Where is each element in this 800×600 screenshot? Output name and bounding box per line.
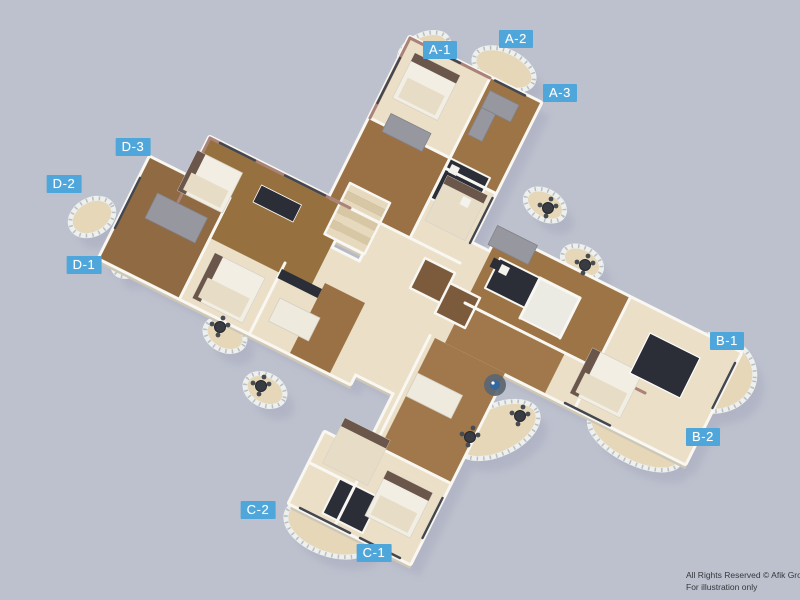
unit-label-c2: C-2 [241, 501, 276, 519]
unit-label-d3: D-3 [116, 138, 151, 156]
unit-label-a2: A-2 [499, 30, 533, 48]
unit-label-b2: B-2 [686, 428, 720, 446]
unit-label-d2: D-2 [47, 175, 82, 193]
living-rug [484, 374, 506, 396]
unit-label-d1: D-1 [67, 256, 102, 274]
floor-slab [100, 38, 740, 563]
unit-label-a3: A-3 [543, 84, 577, 102]
unit-label-c1: C-1 [357, 544, 392, 562]
floor-plan-stage: A-1A-2A-3B-1B-2C-1C-2D-1D-2D-3 All Right… [0, 0, 800, 600]
copyright-line-2: For illustration only [686, 581, 800, 593]
copyright-line-1: All Rights Reserved © Afik Group [686, 569, 800, 581]
unit-label-b1: B-1 [710, 332, 744, 350]
floor-plan-illustration [0, 0, 800, 600]
copyright-note: All Rights Reserved © Afik Group For ill… [686, 569, 800, 594]
unit-label-a1: A-1 [423, 41, 457, 59]
page: { "page": { "background": "#bdc1ce", "ti… [0, 0, 800, 600]
